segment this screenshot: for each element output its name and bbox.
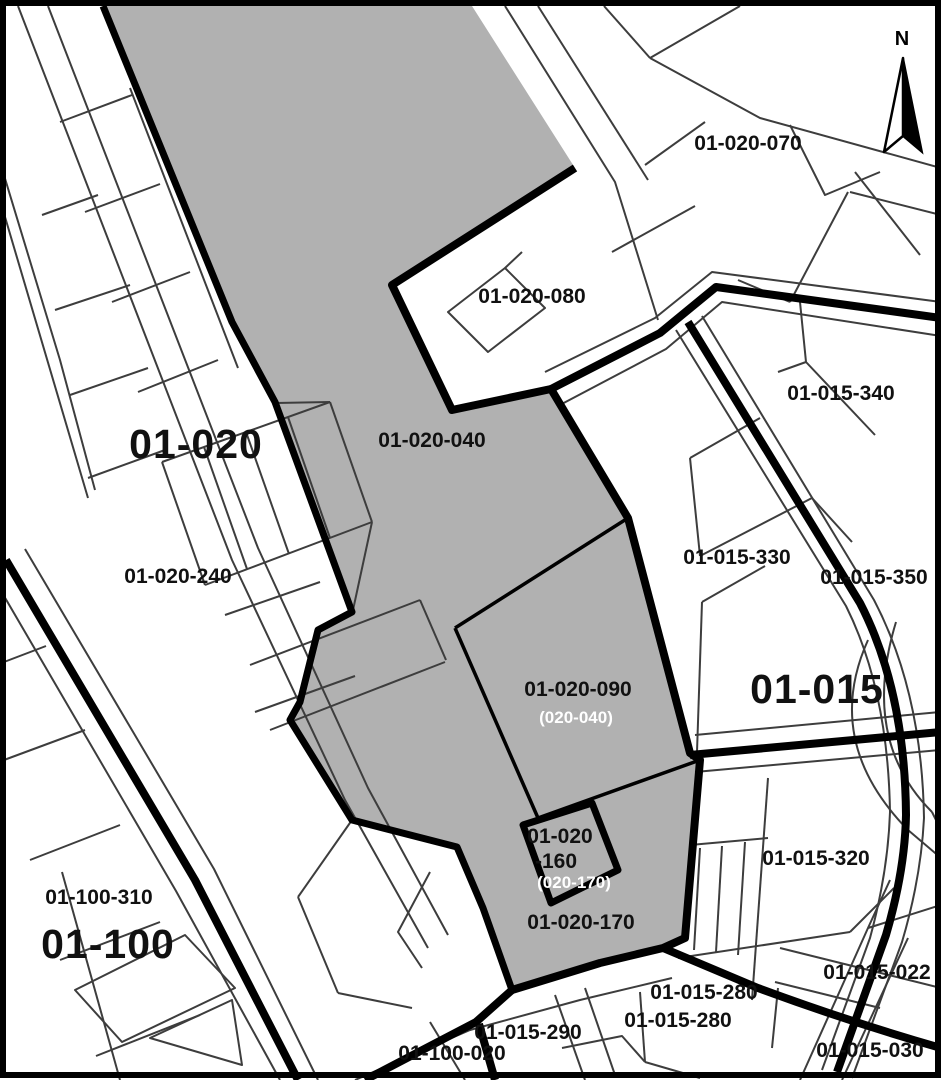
parcel-label-01-020-080: 01-020-080 bbox=[478, 285, 585, 308]
cadastral-map-page: 01-020-070 01-020-080 01-020 01-020-040 … bbox=[0, 0, 941, 1080]
parcel-label-01-100-310: 01-100-310 bbox=[45, 886, 152, 909]
parcel-label-01-020-160-line1: 01-020 bbox=[527, 825, 592, 848]
district-label-01-100: 01-100 bbox=[41, 921, 175, 967]
north-arrow-label: N bbox=[895, 28, 909, 50]
parcel-label-01-015-022: 01-015-022 bbox=[823, 961, 930, 984]
parcel-label-01-015-340: 01-015-340 bbox=[787, 382, 894, 405]
parcel-label-01-015-030: 01-015-030 bbox=[816, 1039, 923, 1062]
parcel-label-01-020-090: 01-020-090 bbox=[524, 678, 631, 701]
parcel-label-01-015-290: 01-015-290 bbox=[474, 1021, 581, 1044]
parcel-label-01-015-320: 01-015-320 bbox=[762, 847, 869, 870]
parcel-label-01-020-160-line2: -160 bbox=[535, 850, 577, 873]
parcel-label-01-015-280-a: 01-015-280 bbox=[650, 981, 757, 1004]
parcel-sublabel-020-040: (020-040) bbox=[539, 708, 613, 727]
cadastral-map: 01-020-070 01-020-080 01-020 01-020-040 … bbox=[0, 0, 941, 1080]
parcel-sublabel-020-170: (020-170) bbox=[537, 873, 611, 892]
district-label-01-015: 01-015 bbox=[750, 666, 884, 712]
district-label-01-020: 01-020 bbox=[129, 421, 263, 467]
parcel-label-01-020-170: 01-020-170 bbox=[527, 911, 634, 934]
parcel-label-01-015-350: 01-015-350 bbox=[820, 566, 927, 589]
parcel-label-01-020-040: 01-020-040 bbox=[378, 429, 485, 452]
parcel-label-01-015-330: 01-015-330 bbox=[683, 546, 790, 569]
parcel-label-01-100-020: 01-100-020 bbox=[398, 1042, 505, 1065]
parcel-label-01-020-070: 01-020-070 bbox=[694, 132, 801, 155]
parcel-label-01-020-240: 01-020-240 bbox=[124, 565, 231, 588]
parcel-label-01-015-280-b: 01-015-280 bbox=[624, 1009, 731, 1032]
